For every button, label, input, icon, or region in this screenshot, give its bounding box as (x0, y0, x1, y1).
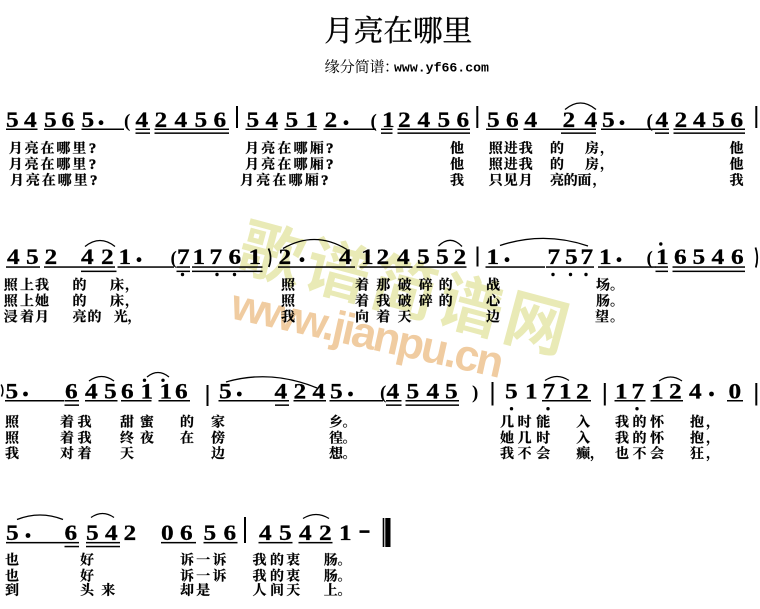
svg-text:?: ? (326, 157, 334, 173)
svg-text:www.yf66.com: www.yf66.com (394, 61, 489, 76)
svg-text:?: ? (89, 141, 97, 157)
svg-text:(: ( (647, 248, 653, 269)
svg-text:1: 1 (118, 245, 131, 269)
svg-text:71761: 71761 (177, 245, 261, 269)
svg-text:): ) (472, 382, 478, 403)
svg-text:1: 1 (486, 245, 499, 269)
svg-text:(: ( (124, 111, 130, 132)
svg-text:?: ? (89, 157, 97, 173)
svg-text:?: ? (321, 173, 329, 189)
svg-text:2: 2 (123, 521, 136, 545)
svg-text:7571: 7571 (548, 245, 612, 269)
svg-text:?: ? (326, 141, 334, 157)
svg-text:452: 452 (7, 245, 57, 269)
svg-text:(: ( (171, 248, 177, 269)
svg-text:2: 2 (278, 245, 291, 269)
svg-text:?: ? (90, 173, 98, 189)
